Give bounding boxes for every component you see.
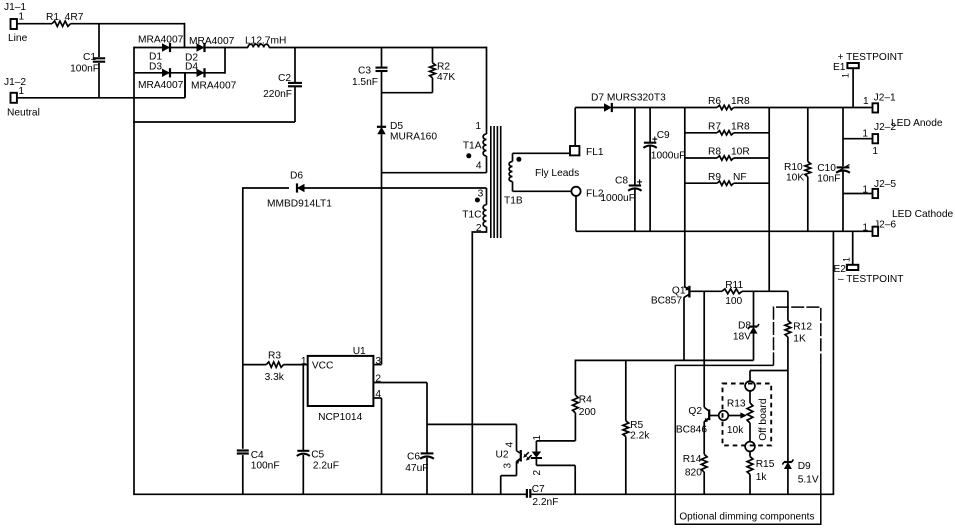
- svg-text:D3: D3: [149, 62, 162, 73]
- svg-text:D5: D5: [390, 121, 403, 132]
- svg-text:L12.7mH: L12.7mH: [245, 36, 286, 47]
- svg-text:J2–2: J2–2: [874, 122, 896, 133]
- svg-text:2.2k: 2.2k: [630, 431, 650, 442]
- svg-text:J2–6: J2–6: [874, 219, 896, 230]
- svg-text:100: 100: [725, 296, 742, 307]
- svg-text:1: 1: [862, 128, 868, 139]
- svg-text:10K: 10K: [786, 173, 804, 184]
- svg-text:T1B: T1B: [504, 196, 523, 207]
- svg-text:R10: R10: [784, 162, 803, 173]
- svg-text:4: 4: [476, 160, 482, 171]
- svg-text:FL1: FL1: [586, 147, 604, 158]
- svg-text:– TESTPOINT: – TESTPOINT: [838, 274, 903, 285]
- svg-text:1: 1: [18, 86, 24, 97]
- svg-text:VCC: VCC: [312, 361, 334, 372]
- svg-text:C8: C8: [615, 176, 628, 187]
- svg-text:C10: C10: [817, 163, 836, 174]
- svg-text:BC857: BC857: [651, 296, 682, 307]
- svg-text:3: 3: [503, 463, 514, 469]
- svg-text:C4: C4: [251, 450, 264, 461]
- svg-text:1: 1: [475, 121, 481, 132]
- svg-text:NCP1014: NCP1014: [318, 412, 363, 423]
- svg-text:1R8: 1R8: [731, 122, 750, 133]
- svg-text:2: 2: [532, 470, 543, 476]
- svg-text:D8: D8: [738, 320, 751, 331]
- svg-text:MRA4007: MRA4007: [138, 80, 184, 91]
- svg-text:T1A: T1A: [463, 141, 482, 152]
- svg-text:1.5nF: 1.5nF: [352, 77, 378, 88]
- svg-text:R5: R5: [630, 420, 643, 431]
- svg-text:R1 4R7: R1 4R7: [46, 12, 84, 23]
- svg-text:D6: D6: [290, 171, 303, 182]
- svg-text:Q2: Q2: [688, 406, 702, 417]
- svg-text:1: 1: [862, 185, 868, 196]
- svg-text:MURA160: MURA160: [390, 132, 437, 143]
- svg-text:MMBD914LT1: MMBD914LT1: [267, 199, 332, 210]
- svg-text:R12: R12: [793, 322, 812, 333]
- svg-text:4: 4: [505, 442, 516, 448]
- svg-text:LED Cathode: LED Cathode: [892, 209, 953, 220]
- svg-text:18V: 18V: [733, 332, 751, 343]
- svg-text:1R8: 1R8: [731, 96, 750, 107]
- svg-text:100nF: 100nF: [70, 64, 99, 75]
- svg-text:T1C: T1C: [462, 210, 481, 221]
- svg-text:R14: R14: [683, 454, 702, 465]
- svg-text:J2–1: J2–1: [874, 92, 896, 103]
- svg-text:C2: C2: [278, 73, 291, 84]
- svg-text:D9: D9: [798, 461, 811, 472]
- svg-text:C6: C6: [407, 452, 420, 463]
- svg-text:MRA4007: MRA4007: [138, 35, 184, 46]
- svg-text:BC846: BC846: [676, 425, 707, 436]
- svg-text:D7 MURS320T3: D7 MURS320T3: [591, 92, 666, 103]
- svg-text:C1: C1: [83, 52, 96, 63]
- svg-text:+ TESTPOINT: + TESTPOINT: [838, 52, 904, 63]
- svg-text:1k: 1k: [756, 472, 768, 483]
- svg-text:MRA4007: MRA4007: [191, 81, 237, 92]
- svg-text:1: 1: [842, 257, 852, 262]
- svg-text:D4: D4: [185, 62, 198, 73]
- svg-text:200: 200: [579, 407, 596, 418]
- svg-text:1000uF: 1000uF: [651, 151, 686, 162]
- svg-text:Fly Leads: Fly Leads: [535, 168, 579, 179]
- svg-text:1000uF: 1000uF: [600, 193, 635, 204]
- svg-text:2.2nF: 2.2nF: [532, 497, 558, 508]
- svg-text:R4: R4: [579, 395, 592, 406]
- svg-text:R15: R15: [756, 459, 775, 470]
- svg-text:1: 1: [863, 96, 869, 107]
- svg-text:100nF: 100nF: [251, 461, 280, 472]
- svg-text:R13: R13: [727, 398, 746, 409]
- svg-text:C3: C3: [358, 66, 371, 77]
- svg-text:820: 820: [685, 467, 702, 478]
- svg-text:NF: NF: [733, 172, 747, 183]
- svg-text:Off board: Off board: [758, 398, 769, 441]
- svg-text:Optional dimming components: Optional dimming components: [679, 511, 814, 522]
- svg-text:R11: R11: [725, 280, 743, 291]
- svg-text:R3: R3: [268, 350, 281, 361]
- svg-text:10R: 10R: [731, 147, 750, 158]
- svg-text:3.3k: 3.3k: [265, 372, 285, 383]
- svg-text:U2: U2: [496, 449, 509, 460]
- svg-text:E1: E1: [833, 62, 846, 73]
- svg-text:1K: 1K: [793, 334, 806, 345]
- svg-text:R9: R9: [708, 172, 721, 183]
- svg-text:Line: Line: [8, 33, 28, 44]
- svg-text:R6: R6: [708, 96, 721, 107]
- svg-text:MRA4007: MRA4007: [189, 36, 235, 47]
- svg-text:220nF: 220nF: [263, 89, 292, 100]
- svg-text:10k: 10k: [727, 425, 744, 436]
- svg-text:C9: C9: [657, 130, 670, 141]
- svg-text:47K: 47K: [437, 72, 455, 83]
- svg-text:2.2uF: 2.2uF: [313, 461, 339, 472]
- svg-text:1: 1: [18, 12, 24, 23]
- svg-text:LED Anode: LED Anode: [891, 118, 943, 129]
- svg-text:Q1: Q1: [672, 285, 686, 296]
- svg-text:C5: C5: [311, 450, 324, 461]
- svg-text:1: 1: [862, 223, 868, 234]
- svg-text:U1: U1: [353, 346, 366, 357]
- svg-text:R7: R7: [708, 122, 721, 133]
- svg-text:10nF: 10nF: [817, 174, 840, 185]
- svg-text:J2–5: J2–5: [874, 179, 896, 190]
- svg-text:1: 1: [841, 73, 851, 78]
- svg-text:47uF: 47uF: [405, 463, 428, 474]
- svg-text:R8: R8: [708, 147, 721, 158]
- svg-text:5.1V: 5.1V: [798, 475, 819, 486]
- svg-text:1: 1: [532, 435, 543, 441]
- svg-text:R2: R2: [437, 62, 450, 73]
- svg-text:Neutral: Neutral: [7, 108, 40, 119]
- svg-text:1: 1: [872, 146, 878, 157]
